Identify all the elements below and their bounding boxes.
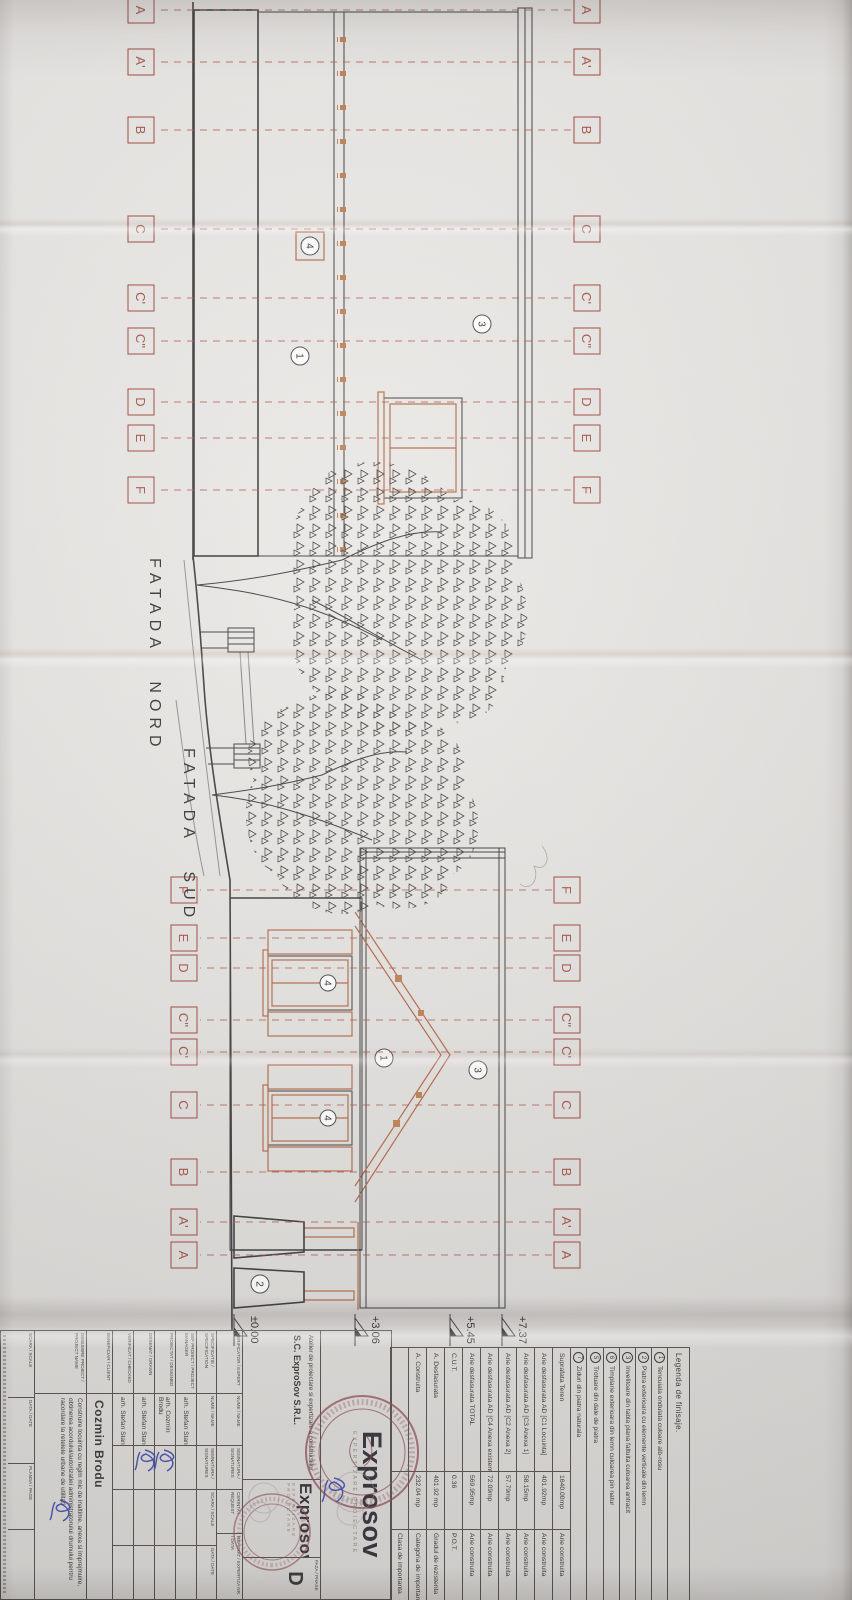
logo-rings xyxy=(249,1472,374,1525)
pen-signatures xyxy=(50,1450,344,1521)
signature-proiectat xyxy=(154,1450,174,1471)
round-stamp-2 xyxy=(234,1494,310,1570)
architectural-sheet: 4 1 3 xyxy=(0,0,852,1600)
photographed-drawing: 4 1 3 xyxy=(0,0,852,1600)
round-stamp-1 xyxy=(306,1396,418,1508)
signature-client xyxy=(50,1500,70,1521)
stamps-signatures xyxy=(0,0,852,1600)
signature-desenat xyxy=(135,1450,155,1471)
